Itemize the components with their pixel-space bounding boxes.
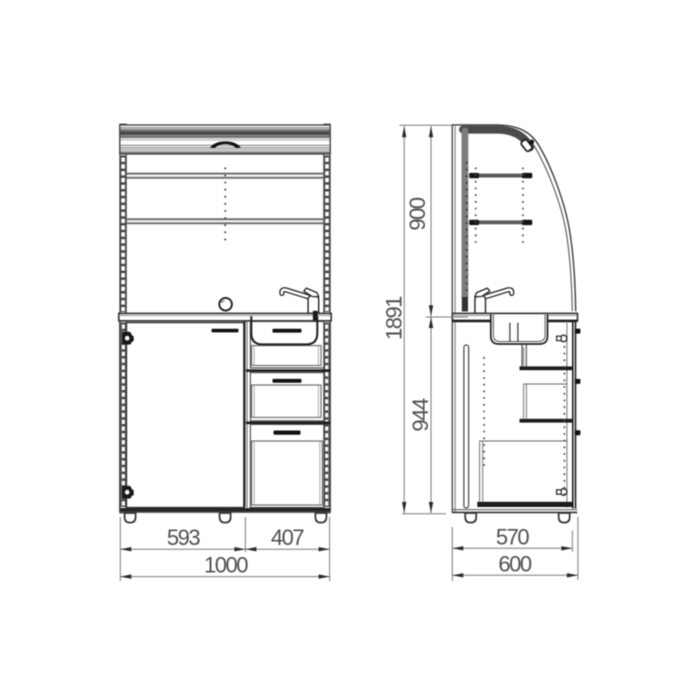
- svg-text:1000: 1000: [204, 552, 248, 577]
- svg-text:1891: 1891: [382, 296, 407, 340]
- svg-text:407: 407: [271, 525, 304, 550]
- svg-text:593: 593: [167, 525, 200, 550]
- svg-text:900: 900: [405, 197, 430, 230]
- svg-text:600: 600: [498, 552, 531, 577]
- svg-text:570: 570: [496, 525, 529, 550]
- svg-text:944: 944: [408, 398, 433, 431]
